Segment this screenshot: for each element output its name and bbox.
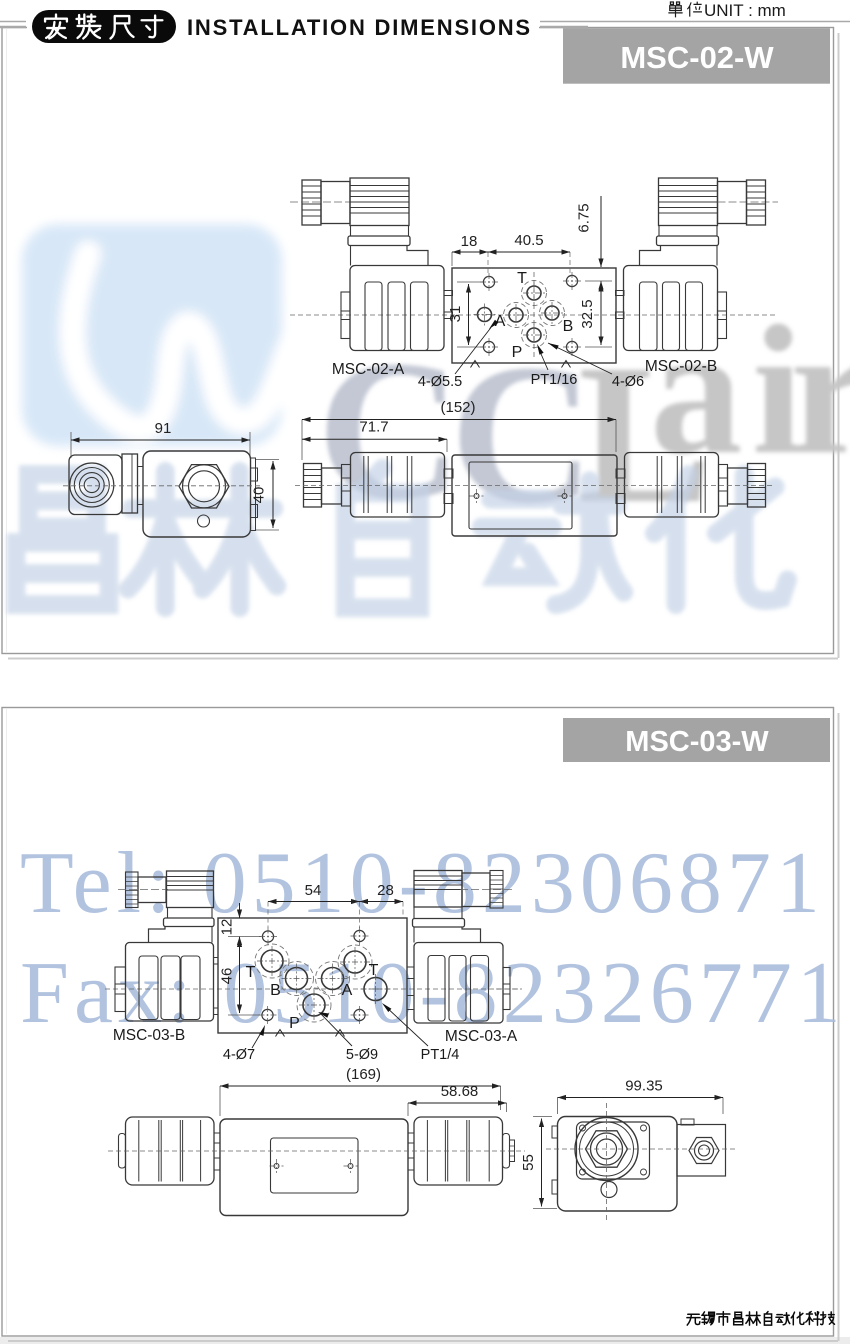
svg-text:PT1/4: PT1/4 bbox=[421, 1047, 460, 1063]
svg-text:4-Ø6: 4-Ø6 bbox=[612, 374, 644, 390]
svg-text:32.5: 32.5 bbox=[579, 299, 596, 328]
svg-text:31: 31 bbox=[447, 306, 464, 323]
svg-text:71.7: 71.7 bbox=[359, 419, 388, 436]
svg-text:6.75: 6.75 bbox=[576, 203, 593, 232]
svg-text:MSC-03-B: MSC-03-B bbox=[113, 1027, 185, 1044]
svg-text:r: r bbox=[790, 288, 850, 493]
svg-text:MSC-02-B: MSC-02-B bbox=[645, 358, 717, 375]
svg-text:MSC-02-A: MSC-02-A bbox=[332, 361, 405, 378]
svg-text:a: a bbox=[650, 288, 743, 493]
svg-text:INSTALLATION DIMENSIONS: INSTALLATION DIMENSIONS bbox=[187, 15, 532, 40]
svg-text:Tel: 0510-82306871: Tel: 0510-82306871 bbox=[20, 835, 825, 932]
svg-text:PT1/16: PT1/16 bbox=[531, 372, 578, 388]
svg-text:UNIT : mm: UNIT : mm bbox=[704, 1, 786, 20]
svg-text:55: 55 bbox=[520, 1154, 537, 1171]
svg-text:B: B bbox=[270, 982, 281, 999]
svg-text:4-Ø5.5: 4-Ø5.5 bbox=[418, 374, 462, 390]
svg-text:T: T bbox=[246, 964, 256, 981]
svg-text:(169): (169) bbox=[346, 1066, 381, 1083]
svg-text:T: T bbox=[369, 962, 379, 979]
svg-text:MSC-03-W: MSC-03-W bbox=[625, 726, 769, 758]
svg-text:MSC-02-W: MSC-02-W bbox=[620, 40, 774, 75]
svg-text:40: 40 bbox=[251, 487, 268, 504]
svg-text:T: T bbox=[517, 270, 527, 287]
svg-text:(152): (152) bbox=[440, 399, 475, 416]
svg-text:28: 28 bbox=[377, 882, 394, 899]
svg-text:54: 54 bbox=[305, 882, 322, 899]
svg-text:12: 12 bbox=[219, 919, 236, 936]
svg-text:P: P bbox=[289, 1015, 300, 1032]
svg-text:18: 18 bbox=[461, 233, 478, 250]
svg-text:B: B bbox=[563, 318, 574, 335]
svg-text:99.35: 99.35 bbox=[625, 1078, 663, 1095]
svg-text:46: 46 bbox=[219, 968, 236, 985]
svg-text:MSC-03-A: MSC-03-A bbox=[445, 1028, 518, 1045]
svg-text:A: A bbox=[342, 982, 353, 999]
svg-text:P: P bbox=[512, 344, 523, 361]
svg-text:5-Ø9: 5-Ø9 bbox=[346, 1047, 378, 1063]
svg-text:58.68: 58.68 bbox=[441, 1083, 479, 1100]
svg-text:4-Ø7: 4-Ø7 bbox=[223, 1047, 255, 1063]
svg-text:40.5: 40.5 bbox=[514, 232, 543, 249]
svg-text:91: 91 bbox=[155, 420, 172, 437]
